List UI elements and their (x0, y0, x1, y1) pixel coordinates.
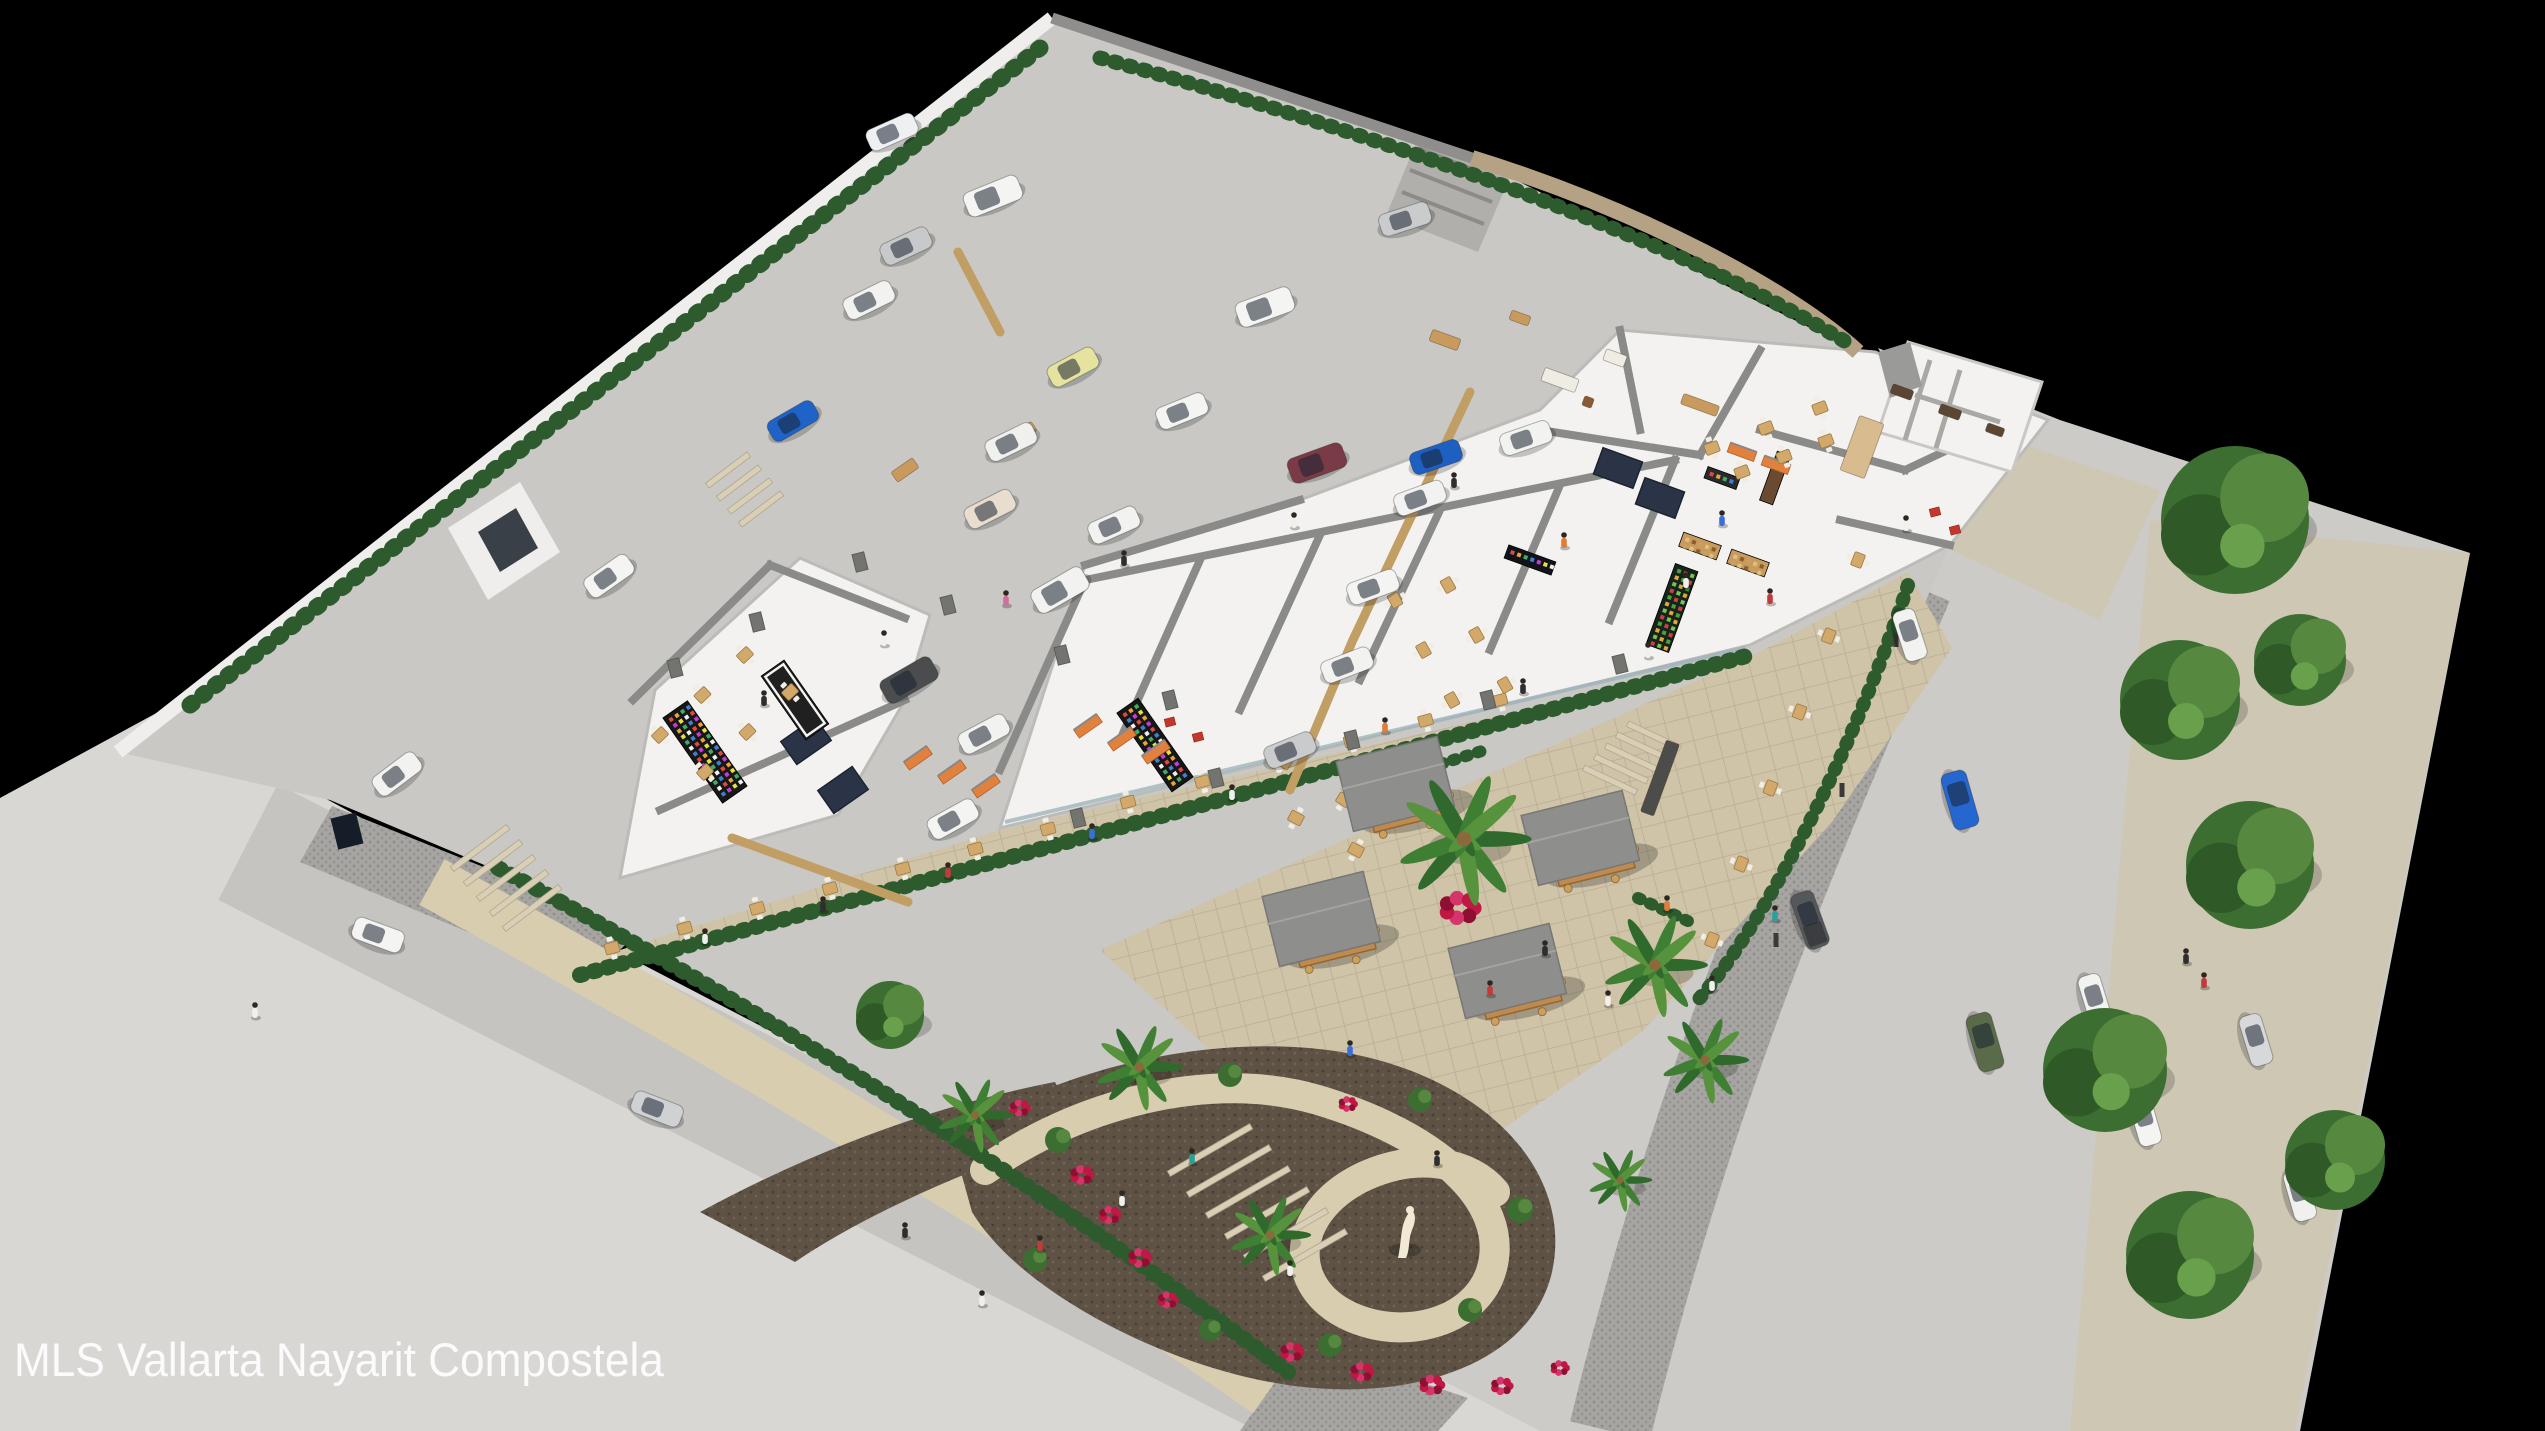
palm-crown (1649, 959, 1661, 971)
tree (2285, 1110, 2393, 1210)
flowers (1503, 1378, 1511, 1386)
flowers (1293, 1343, 1301, 1351)
person-body (1767, 594, 1773, 604)
person-body (1683, 578, 1689, 588)
shrub-highlight (1208, 1321, 1220, 1333)
person-body (1291, 518, 1297, 528)
flowers (1349, 1097, 1356, 1104)
person-body (1451, 478, 1457, 488)
person-body (1487, 986, 1493, 996)
flowers (1433, 1376, 1442, 1385)
person-body (1903, 521, 1909, 531)
person-body (902, 1228, 908, 1238)
person-body (702, 934, 708, 944)
person-body (1229, 790, 1235, 800)
person-body (1520, 684, 1526, 694)
person-head (1605, 990, 1611, 996)
flowers (1104, 1206, 1112, 1214)
flowers (1141, 1258, 1149, 1266)
person-head (902, 1222, 908, 1228)
shrub-highlight (1468, 1300, 1481, 1313)
flowers (1076, 1165, 1084, 1173)
person-body (1645, 648, 1651, 658)
person-body (761, 696, 767, 706)
person-body (1121, 556, 1127, 566)
flowers (1363, 1363, 1371, 1371)
flowers (1450, 891, 1465, 906)
bollard (1840, 783, 1845, 797)
person-head (1645, 642, 1651, 648)
flowers (1561, 1361, 1568, 1368)
shrub-highlight (1418, 1090, 1431, 1103)
flowers (1021, 1100, 1028, 1107)
shrub-highlight (1518, 1199, 1532, 1213)
flowers (1286, 1342, 1294, 1350)
person-body (1089, 829, 1095, 839)
flowers (1111, 1215, 1119, 1223)
person-head (761, 690, 767, 696)
shrub (1458, 1298, 1482, 1322)
flowers (1083, 1166, 1091, 1174)
palm-crown (1457, 832, 1472, 847)
person-head (1382, 717, 1388, 723)
tree-highlight (2177, 1258, 2215, 1296)
tree-highlight (2093, 1073, 2130, 1110)
person-head (1089, 823, 1095, 829)
person-head (1709, 975, 1715, 981)
person-body (1434, 1156, 1440, 1166)
flowers (1561, 1368, 1568, 1375)
person-head (2201, 972, 2207, 978)
person-head (1119, 1190, 1125, 1196)
tree-highlight (883, 1017, 903, 1037)
person-head (945, 862, 951, 868)
flowers (1293, 1352, 1301, 1360)
flowers (1141, 1249, 1149, 1257)
person-head (1561, 532, 1567, 538)
person-body (881, 636, 887, 646)
shrub (1045, 1127, 1071, 1153)
person-body (1003, 596, 1009, 606)
person-head (1719, 510, 1725, 516)
person-body (820, 902, 826, 912)
shrub (1507, 1197, 1533, 1223)
person-head (1347, 1040, 1353, 1046)
flowers (1021, 1108, 1028, 1115)
tree-highlight (2220, 524, 2264, 568)
shrub-highlight (1228, 1065, 1241, 1078)
tree-highlight (2291, 662, 2319, 690)
person-body (2183, 954, 2189, 964)
flowers (1356, 1362, 1364, 1370)
person-head (1189, 1148, 1195, 1154)
person-body (1119, 1196, 1125, 1206)
person-head (1121, 550, 1127, 556)
shrub (1318, 1333, 1342, 1357)
flowers (1426, 1374, 1435, 1383)
person-body (1382, 723, 1388, 733)
person-head (1287, 1260, 1293, 1266)
person-head (1767, 588, 1773, 594)
person-head (1037, 1235, 1043, 1241)
person-body (2201, 978, 2207, 988)
person-body (945, 868, 951, 878)
tree-highlight (2168, 703, 2204, 739)
flowers (1134, 1248, 1142, 1256)
shrub-highlight (1328, 1335, 1341, 1348)
shrub (1199, 1319, 1221, 1341)
palm-crown (1266, 1231, 1275, 1240)
person-head (1664, 895, 1670, 901)
person-head (1772, 905, 1778, 911)
person-body (1709, 981, 1715, 991)
person-body (1719, 516, 1725, 526)
person-head (1291, 512, 1297, 518)
shrub (1408, 1088, 1432, 1112)
person-head (1683, 572, 1689, 578)
palm-crown (1700, 1055, 1710, 1065)
person-body (1037, 1241, 1043, 1251)
person-head (881, 630, 887, 636)
person-head (1434, 1150, 1440, 1156)
flowers (1363, 1372, 1371, 1380)
person-body (1664, 901, 1670, 911)
tree-highlight (2325, 1163, 2355, 1193)
person-body (1287, 1266, 1293, 1276)
person-head (1229, 784, 1235, 790)
render-canvas: MLS Vallarta Nayarit Compostela (0, 0, 2545, 1431)
person-head (2183, 948, 2189, 954)
person-body (1772, 911, 1778, 921)
person-head (1520, 678, 1526, 684)
flowers (1169, 1300, 1176, 1307)
tree-highlight (2237, 868, 2275, 906)
person-head (820, 896, 826, 902)
person-head (979, 1290, 985, 1296)
person-head (1487, 980, 1493, 986)
palm-crown (971, 1111, 979, 1119)
flowers (1496, 1377, 1504, 1385)
person-body (1542, 946, 1548, 956)
person-body (1605, 996, 1611, 1006)
flowers (1503, 1386, 1511, 1394)
shrub (1218, 1063, 1242, 1087)
person-head (1451, 472, 1457, 478)
watermark-caption: MLS Vallarta Nayarit Compostela (14, 1332, 664, 1387)
person-body (979, 1296, 985, 1306)
flowers (1015, 1099, 1022, 1106)
flowers (1462, 909, 1477, 924)
flowers (1169, 1292, 1176, 1299)
flowers (1111, 1207, 1119, 1215)
flowers (1083, 1175, 1091, 1183)
flowers (1555, 1360, 1562, 1367)
bollard (1774, 933, 1779, 947)
person-head (702, 928, 708, 934)
flowers (1343, 1096, 1350, 1103)
plaza-aerial-render (0, 0, 2545, 1431)
person-head (1003, 590, 1009, 596)
person-body (1561, 538, 1567, 548)
person-body (1347, 1046, 1353, 1056)
flowers (1163, 1291, 1170, 1298)
person-head (1542, 940, 1548, 946)
person-body (1189, 1154, 1195, 1164)
palm-crown (1616, 1176, 1623, 1183)
shrub-highlight (1056, 1129, 1070, 1143)
person-head (252, 1002, 258, 1008)
person-body (252, 1008, 258, 1018)
flowers (1433, 1385, 1442, 1394)
palm-crown (1134, 1062, 1144, 1072)
flowers (1349, 1104, 1356, 1111)
person-head (1903, 515, 1909, 521)
